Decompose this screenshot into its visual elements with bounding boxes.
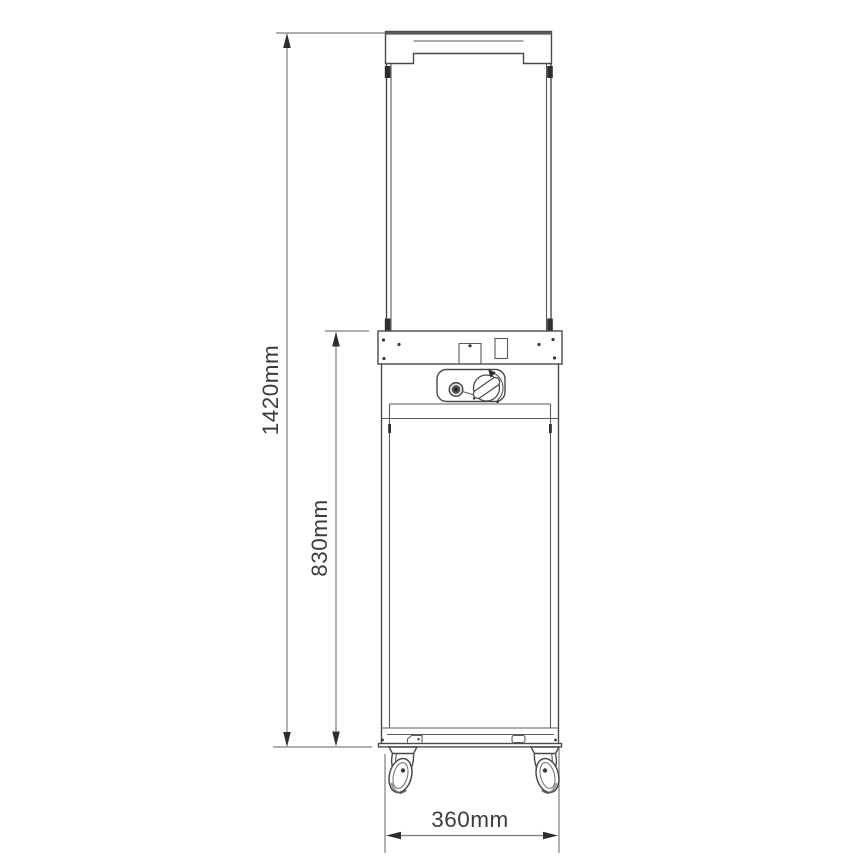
caster-plate (531, 747, 559, 754)
caster-right (531, 747, 562, 795)
arrowhead-down-icon (283, 732, 291, 747)
screw-dot (551, 338, 554, 341)
cabinet-shell (382, 364, 559, 747)
base-latch-left (408, 736, 423, 743)
screw-dot (537, 343, 540, 346)
heater-front-elevation (378, 32, 562, 795)
screw-dot (382, 357, 385, 360)
arrowhead-right-icon (543, 832, 558, 839)
arrowhead-down-icon (332, 732, 340, 747)
caster-wheel (533, 756, 563, 795)
caster-hub (401, 768, 405, 772)
right-post-clip-bottom (547, 319, 553, 331)
dimension-label-body-height: 830mm (307, 499, 332, 577)
notch-dot (468, 344, 471, 347)
burner-vent (495, 339, 508, 359)
left-post-clip-bottom (385, 319, 391, 331)
screw-dot (382, 338, 385, 341)
screw-dot (553, 356, 556, 359)
screw-dot (397, 343, 400, 346)
caster-hub (543, 768, 547, 772)
burner-housing (378, 331, 562, 364)
base-assembly (379, 728, 562, 747)
caster-left (386, 747, 417, 795)
base-screw-dot (381, 739, 384, 742)
dimension-label-total-height: 1420mm (258, 345, 283, 436)
right-post-clip-top (547, 66, 553, 78)
glass-tube-frame (385, 64, 553, 332)
arrowhead-up-icon (332, 332, 340, 347)
igniter-button-center (454, 388, 457, 391)
top-cap-outline (386, 32, 552, 64)
door-hinge-right (549, 424, 552, 433)
caster-wheel (386, 756, 416, 795)
dimension-label-width: 360mm (431, 807, 509, 832)
burner-housing-outline (378, 331, 562, 364)
latch-dot (417, 738, 419, 740)
rotation-arc-dot (496, 400, 499, 403)
control-panel (437, 369, 505, 403)
top-cap (386, 32, 552, 64)
caster-plate (389, 747, 417, 754)
left-post-clip-top (385, 66, 391, 78)
door-hinge-left (388, 424, 391, 433)
arrowhead-up-icon (283, 33, 291, 48)
dimension-total-height: 1420mm (258, 33, 385, 747)
base-screw-dot (554, 739, 557, 742)
arrowhead-left-icon (386, 832, 401, 839)
base-latch-right (512, 736, 525, 743)
dimension-body-height: 830mm (307, 331, 369, 747)
patio-heater-dimension-drawing: 1420mm 830mm 360mm (0, 0, 868, 868)
knob-stop-dot (473, 397, 475, 399)
dimension-width: 360mm (385, 745, 559, 853)
technical-drawing-canvas: 1420mm 830mm 360mm (0, 0, 868, 868)
